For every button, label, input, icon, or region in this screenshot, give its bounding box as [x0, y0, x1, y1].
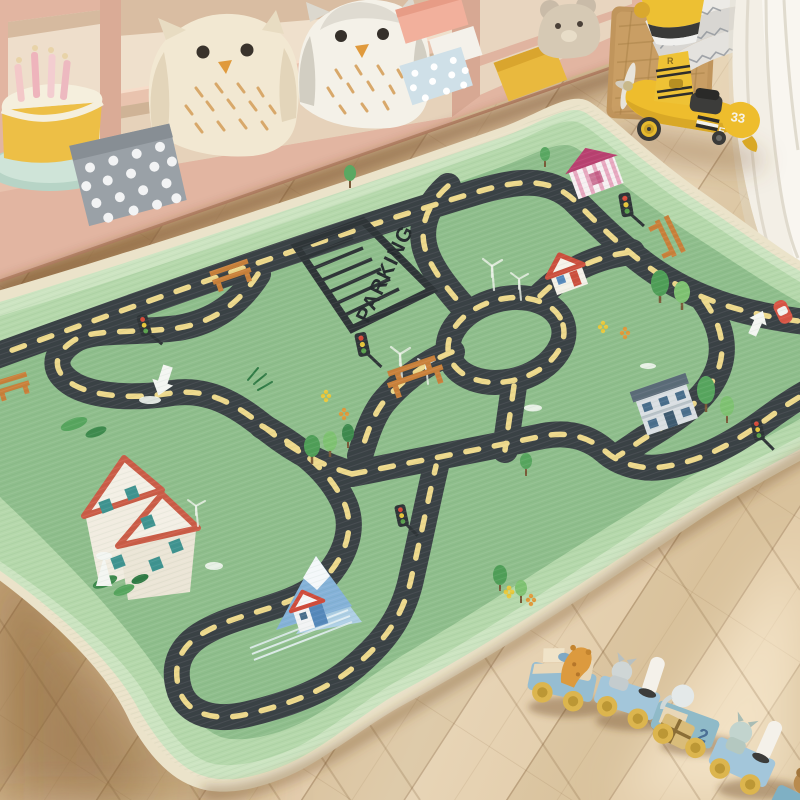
svg-text:33: 33 [730, 109, 747, 126]
svg-text:R: R [667, 56, 674, 66]
